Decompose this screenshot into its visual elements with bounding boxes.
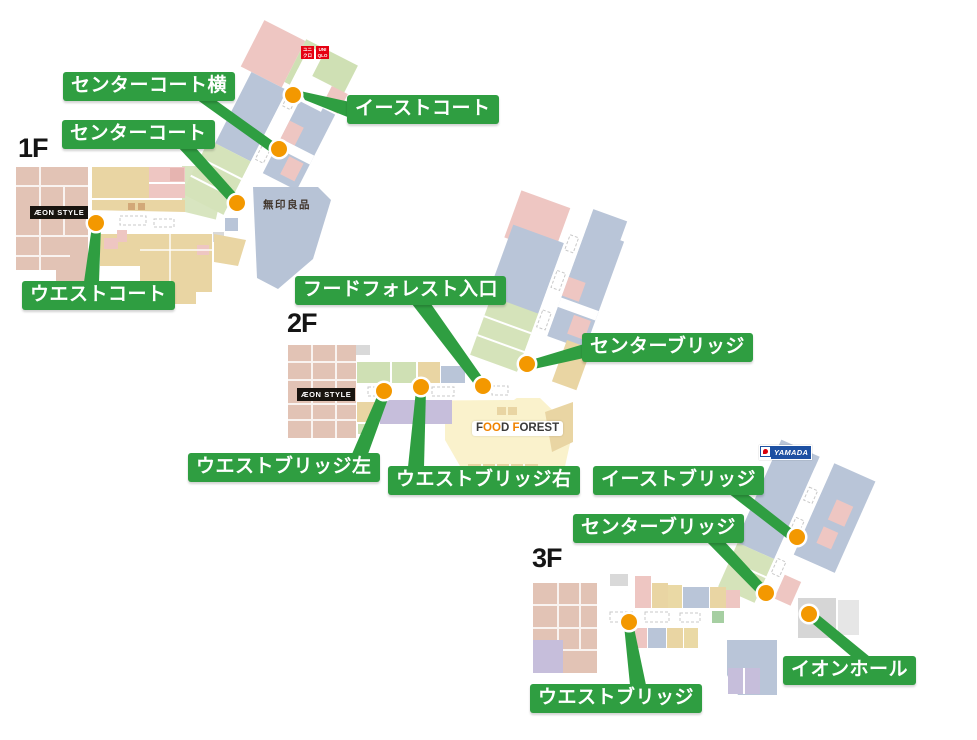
dot-1f-center-court-side[interactable] [269,139,290,160]
dot-2f-center-bridge[interactable] [517,354,538,375]
label-2f-west-bridge-right[interactable]: ウエストブリッジ右 [388,466,580,495]
floor-1f-map [16,18,361,304]
label-2f-west-bridge-left[interactable]: ウエストブリッジ左 [188,453,380,482]
dot-1f-west-court[interactable] [86,213,107,234]
food-forest-logo: FOOD FOREST [472,421,563,436]
muji-logo: 無印良品 [263,197,311,212]
floor-marker-2f: 2F [287,308,317,339]
label-2f-food-forest-entrance[interactable]: フードフォレスト入口 [295,276,506,305]
floor-marker-3f: 3F [532,543,562,574]
dot-2f-west-bridge-right[interactable] [411,377,432,398]
yamada-bird-icon [760,446,771,457]
dot-3f-aeon-hall[interactable] [799,604,820,625]
dot-1f-east-court[interactable] [283,85,304,106]
mall-floor-guide: 1F 2F 3F ÆON STYLE ÆON STYLE 無印良品 ユニクロ U… [0,0,977,740]
floor-2f-map [288,184,637,480]
dot-1f-center-court[interactable] [227,193,248,214]
label-3f-east-bridge[interactable]: イーストブリッジ [593,466,764,495]
label-3f-center-bridge[interactable]: センターブリッジ [573,514,744,543]
yamada-logo: YAMADA [759,445,812,460]
label-1f-west-court[interactable]: ウエストコート [22,281,175,310]
label-3f-aeon-hall[interactable]: イオンホール [783,656,916,685]
dot-3f-center-bridge[interactable] [756,583,777,604]
floor-marker-1f: 1F [18,133,48,164]
label-1f-east-court[interactable]: イーストコート [347,95,499,124]
label-3f-west-bridge[interactable]: ウエストブリッジ [530,684,702,713]
dot-2f-food-forest-entrance[interactable] [473,376,494,397]
dot-2f-west-bridge-left[interactable] [374,381,395,402]
label-2f-center-bridge[interactable]: センターブリッジ [582,333,753,362]
uniqlo-logo-en-square: UNIQLO [316,46,329,59]
label-1f-center-court-side[interactable]: センターコート横 [63,72,235,101]
aeon-style-logo-1f: ÆON STYLE [30,206,88,219]
label-1f-center-court[interactable]: センターコート [62,120,215,149]
uniqlo-logo: ユニクロ UNIQLO [301,46,329,59]
dot-3f-west-bridge[interactable] [619,612,640,633]
aeon-style-logo-2f: ÆON STYLE [297,388,355,401]
dot-3f-east-bridge[interactable] [787,527,808,548]
uniqlo-logo-kana-square: ユニクロ [301,46,314,59]
